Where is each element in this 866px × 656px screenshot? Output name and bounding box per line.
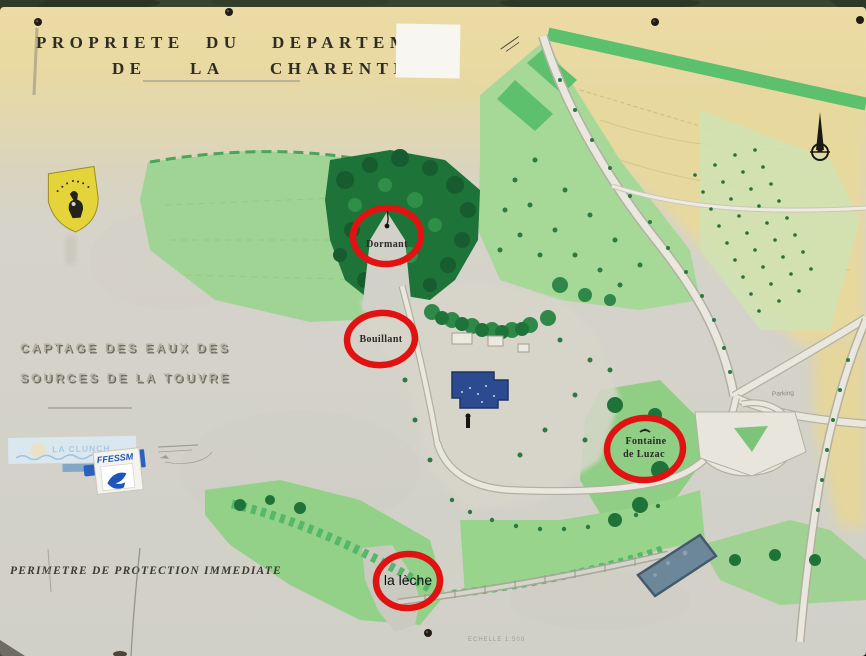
- perimetre-text: PERIMETRE DE PROTECTION IMMEDIATE: [10, 565, 282, 577]
- bouillant-label: Bouillant: [359, 334, 402, 345]
- park-map-sign: Parking: [0, 0, 866, 656]
- captage-line2: SOURCES DE LA TOUVRE: [20, 371, 231, 385]
- white-patch: [396, 23, 461, 78]
- title-word: DEPARTEM: [272, 33, 411, 52]
- fontaine-label-line1: Fontaine: [626, 436, 667, 447]
- parking-label: Parking: [772, 390, 795, 398]
- title-word: LA: [190, 59, 225, 78]
- title-word: PROPRIETE: [36, 33, 185, 52]
- shield-drip-stain: [66, 236, 76, 264]
- sign-photo: Parking: [0, 0, 866, 656]
- title-word: DU: [206, 33, 242, 52]
- captage-line1: CAPTAGE DES EAUX DES: [20, 341, 230, 355]
- leche-label: la lèche: [384, 572, 432, 588]
- scale-caption: ECHELLE 1:500: [468, 637, 525, 643]
- title-word: CHARENTE: [270, 59, 410, 78]
- fontaine-label-line2: de Luzac: [623, 449, 665, 460]
- statue-mark: [466, 414, 471, 429]
- title-word: DE: [112, 59, 147, 78]
- dormant-label: Dormant: [366, 239, 408, 250]
